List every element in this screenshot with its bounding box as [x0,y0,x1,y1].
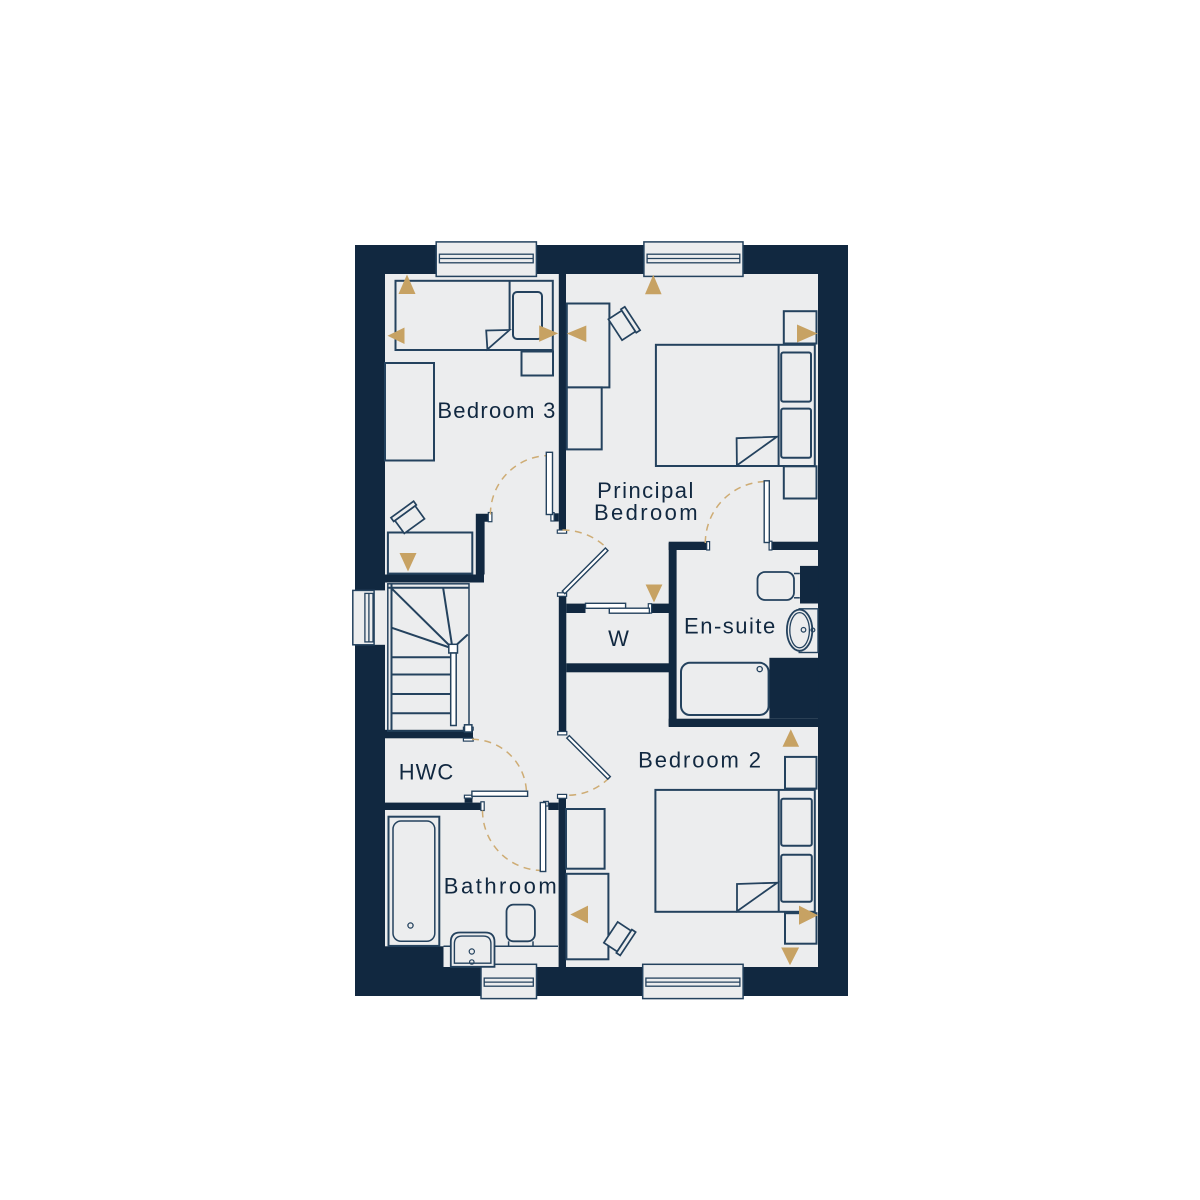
svg-text:HWC: HWC [399,760,455,785]
svg-text:Bedroom: Bedroom [594,500,700,525]
svg-text:En-suite: En-suite [684,614,777,639]
svg-text:Bathroom: Bathroom [444,874,559,899]
svg-text:Bedroom 3: Bedroom 3 [437,398,556,423]
svg-text:W: W [608,626,629,651]
svg-text:Bedroom 2: Bedroom 2 [638,748,763,773]
